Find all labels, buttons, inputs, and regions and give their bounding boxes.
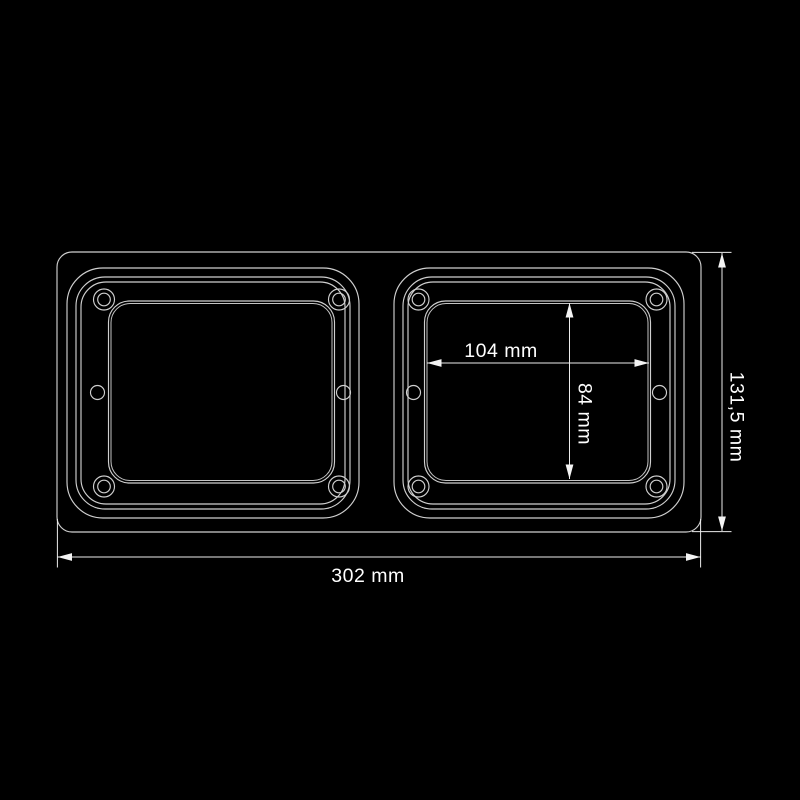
dimension-inner-opening-height: 84 mm bbox=[566, 303, 596, 479]
left-screw-hole-top-left-ring bbox=[94, 289, 115, 310]
arrowhead-up-icon bbox=[566, 303, 574, 318]
left-bezel-inner-line bbox=[81, 282, 345, 504]
drawing-stage: 104 mm 84 mm 131,5 mm 302 mm bbox=[0, 0, 800, 800]
left-lens-opening-inner bbox=[111, 304, 332, 481]
arrowhead-left-icon bbox=[58, 553, 73, 561]
right-screw-hole-top-left bbox=[412, 293, 425, 306]
technical-drawing: 104 mm 84 mm 131,5 mm 302 mm bbox=[0, 0, 800, 800]
dimension-label-84mm: 84 mm bbox=[574, 383, 596, 445]
dimension-label-131-5mm: 131,5 mm bbox=[726, 372, 748, 463]
right-side-hole-left bbox=[407, 386, 421, 400]
arrowhead-down-icon bbox=[566, 465, 574, 480]
right-screw-hole-top-right bbox=[650, 293, 663, 306]
arrowhead-right-icon bbox=[635, 359, 650, 367]
right-screw-hole-top-left-ring bbox=[408, 289, 429, 310]
right-lens-opening-outer bbox=[425, 301, 651, 483]
left-screw-hole-bottom-right-ring bbox=[329, 476, 350, 497]
left-side-hole-left bbox=[91, 386, 105, 400]
right-screw-hole-bottom-right-ring bbox=[646, 476, 667, 497]
arrowhead-up-icon bbox=[718, 253, 726, 268]
right-screw-hole-bottom-left bbox=[412, 480, 425, 493]
left-bezel-middle-line bbox=[76, 277, 350, 509]
right-bezel-middle-line bbox=[403, 277, 675, 509]
right-bezel-inner-line bbox=[408, 282, 670, 504]
right-screw-hole-top-right-ring bbox=[646, 289, 667, 310]
right-side-hole-right bbox=[653, 386, 667, 400]
right-lens-opening-inner bbox=[427, 304, 648, 481]
left-screw-hole-bottom-left-ring bbox=[94, 476, 115, 497]
left-lamp-cell bbox=[67, 268, 359, 518]
left-side-hole-right bbox=[337, 386, 351, 400]
dimension-overall-width: 302 mm bbox=[57, 519, 700, 587]
dimension-inner-opening-width: 104 mm bbox=[427, 340, 649, 367]
left-screw-hole-top-right-ring bbox=[329, 289, 350, 310]
left-screw-hole-bottom-left bbox=[98, 480, 111, 493]
left-lens-opening-outer bbox=[109, 301, 335, 483]
dimension-overall-height: 131,5 mm bbox=[692, 252, 748, 531]
right-screw-hole-bottom-left-ring bbox=[408, 476, 429, 497]
left-screw-hole-top-left bbox=[98, 293, 111, 306]
arrowhead-down-icon bbox=[718, 517, 726, 532]
right-lamp-cell bbox=[394, 268, 684, 518]
dimension-label-302mm: 302 mm bbox=[331, 565, 404, 587]
right-screw-hole-bottom-right bbox=[650, 480, 663, 493]
dimension-label-104mm: 104 mm bbox=[464, 340, 537, 362]
housing-outline bbox=[57, 252, 701, 532]
arrowhead-left-icon bbox=[427, 359, 442, 367]
arrowhead-right-icon bbox=[686, 553, 701, 561]
housing-outer-edge bbox=[57, 252, 701, 532]
